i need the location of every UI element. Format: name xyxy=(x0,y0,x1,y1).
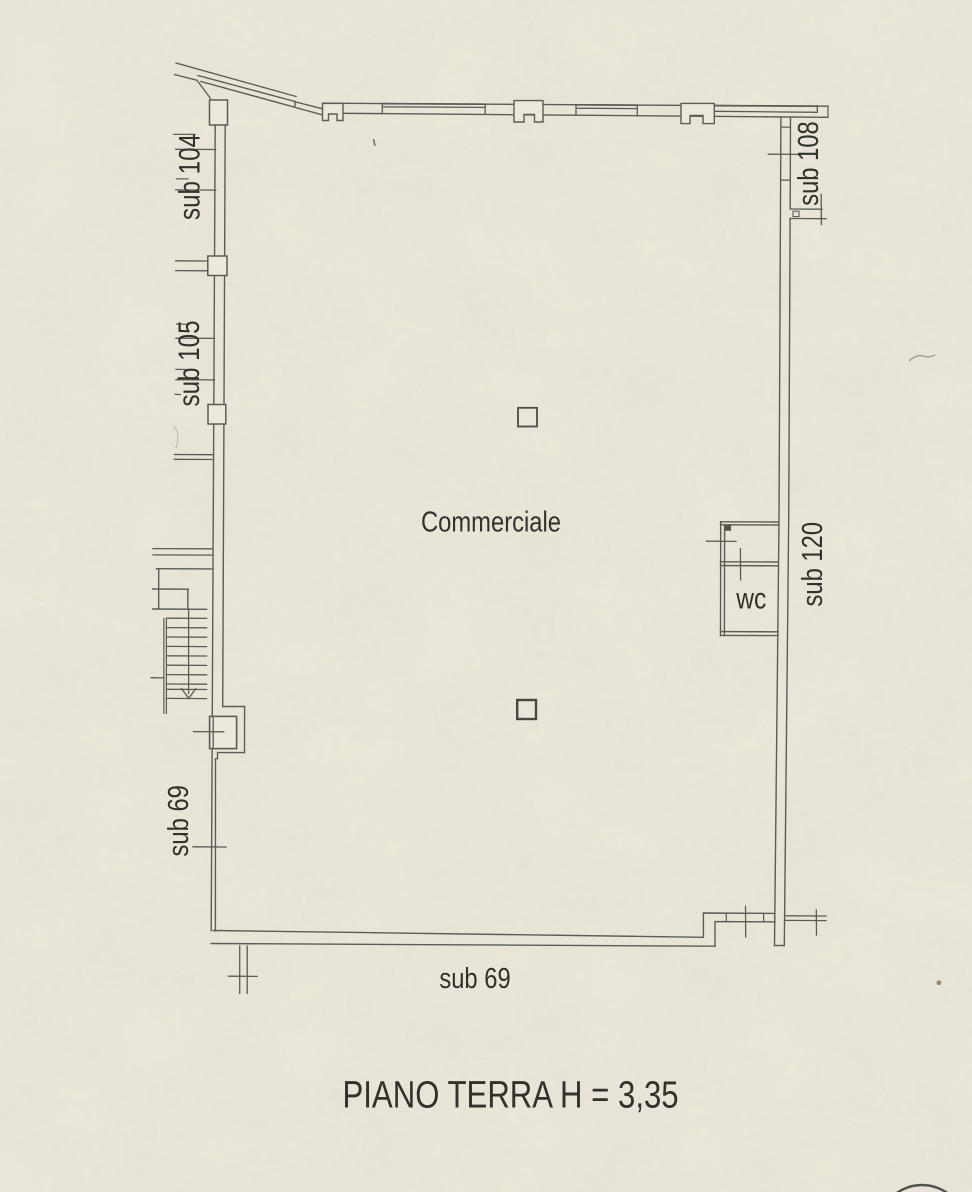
svg-text:sub 105: sub 105 xyxy=(173,320,206,406)
svg-text:sub 108: sub 108 xyxy=(792,121,825,206)
svg-text:sub 104: sub 104 xyxy=(173,134,206,220)
svg-text:sub 69: sub 69 xyxy=(162,785,195,856)
svg-text:wc: wc xyxy=(735,581,766,615)
svg-text:PIANO TERRA H = 3,35: PIANO TERRA H = 3,35 xyxy=(343,1075,679,1117)
svg-text:Commerciale: Commerciale xyxy=(421,505,561,538)
svg-text:sub 120: sub 120 xyxy=(796,522,829,607)
svg-text:sub 69: sub 69 xyxy=(439,962,510,995)
